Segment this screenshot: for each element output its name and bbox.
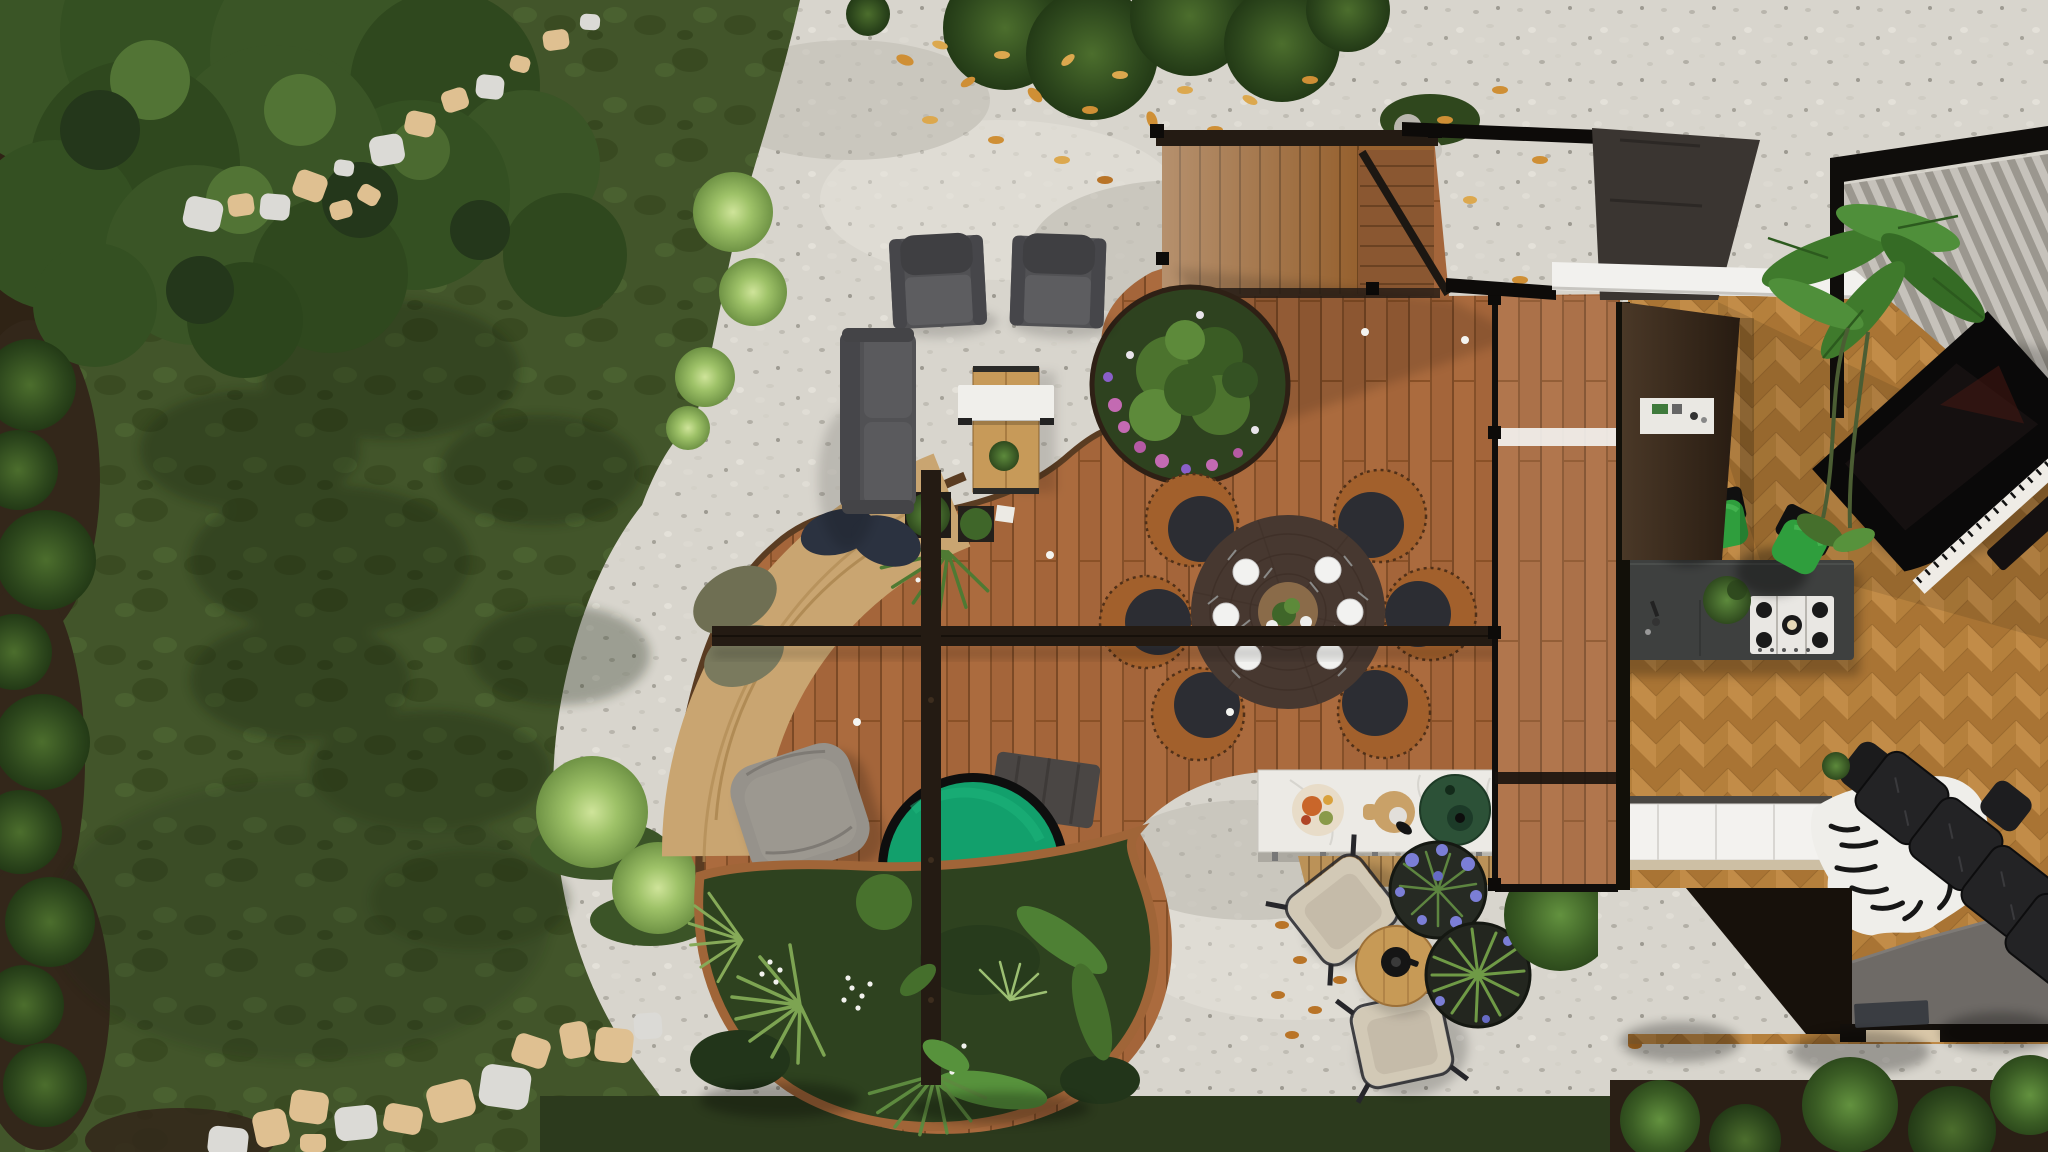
beam-shadow bbox=[712, 648, 1532, 658]
dining-chair bbox=[1384, 568, 1476, 660]
grill-vent bbox=[1445, 785, 1455, 795]
shrub bbox=[1802, 1057, 1898, 1152]
wall-shelf bbox=[1640, 398, 1714, 434]
kamado-grill bbox=[1420, 775, 1490, 845]
white-bench bbox=[958, 385, 1054, 421]
burner bbox=[1812, 602, 1828, 618]
burner bbox=[1812, 632, 1828, 648]
stepping-stone bbox=[207, 1125, 250, 1152]
burner bbox=[1756, 632, 1772, 648]
stepping-stone bbox=[333, 1104, 378, 1142]
lounge-armchair bbox=[889, 231, 999, 340]
white-cube bbox=[995, 505, 1015, 523]
stepping-stone bbox=[477, 1063, 532, 1112]
shelf-books bbox=[1652, 404, 1668, 414]
planter-bush bbox=[960, 508, 992, 540]
stepping-stone bbox=[259, 193, 291, 222]
stepping-stone bbox=[475, 74, 505, 101]
stepping-stone bbox=[579, 13, 600, 30]
bench-foot bbox=[1040, 418, 1054, 425]
flower-planter bbox=[1092, 287, 1288, 483]
design-render-stage bbox=[0, 0, 2048, 1152]
lounge-armchair bbox=[1009, 232, 1118, 340]
food-platter bbox=[1292, 784, 1344, 836]
table-plant bbox=[989, 441, 1019, 471]
newel-post bbox=[1150, 124, 1164, 138]
gas-cooktop bbox=[1750, 596, 1834, 654]
wood-table-with-bench bbox=[958, 366, 1056, 494]
cabinet-counter-edge bbox=[1600, 796, 1832, 804]
stepping-stone bbox=[633, 1012, 663, 1040]
white-ledge bbox=[1498, 428, 1618, 446]
cabinet-kick bbox=[1600, 860, 1832, 870]
stepping-stone bbox=[227, 192, 256, 217]
walkway-frame bbox=[1492, 296, 1498, 890]
small-plant bbox=[1822, 752, 1850, 780]
newel-post bbox=[1156, 252, 1169, 265]
entry-mat bbox=[1854, 1000, 1929, 1028]
site-plan-render bbox=[0, 0, 2048, 1152]
stepping-stone bbox=[300, 1134, 326, 1152]
stepping-stone bbox=[288, 1089, 330, 1126]
bench-foot bbox=[958, 418, 972, 425]
stepping-stone bbox=[593, 1026, 634, 1064]
bed-bush bbox=[856, 874, 912, 930]
pergola-post bbox=[921, 470, 941, 1085]
burner bbox=[1756, 602, 1772, 618]
stair-rail bbox=[1156, 130, 1438, 146]
